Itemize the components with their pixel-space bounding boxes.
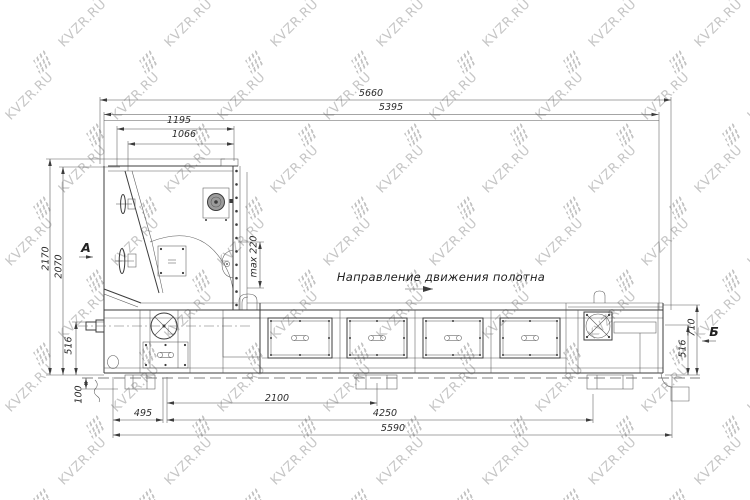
dim-label-4250: 4250 xyxy=(363,408,407,419)
top-sensor xyxy=(594,291,605,303)
dim-label-100: 100 xyxy=(74,373,85,417)
dim-label-2170: 2170 xyxy=(41,237,52,281)
web-direction-note: Направление движения полотна xyxy=(331,270,551,284)
inspection-hatch-2 xyxy=(347,318,407,358)
view-marker-b: Б xyxy=(702,324,726,339)
handwheel-lower xyxy=(115,249,136,274)
column-bolt xyxy=(235,237,238,240)
column-bolt xyxy=(235,197,238,200)
motor-fan xyxy=(203,188,229,221)
end-foot xyxy=(661,373,689,401)
support-block xyxy=(587,375,633,389)
column-bolt xyxy=(235,170,238,173)
dim-label-max-220: max 220 xyxy=(249,232,260,282)
engineering-drawing-page: KVZR.RUKVZR.RUKVZR.RUKVZR.RUKVZR.RUKVZR.… xyxy=(0,0,750,500)
dim-label-495: 495 xyxy=(121,408,165,419)
inspection-hatch-4 xyxy=(500,318,560,358)
dim-label-1066: 1066 xyxy=(162,129,206,140)
dim-label-1195: 1195 xyxy=(157,115,201,126)
column-bolt xyxy=(235,183,238,186)
forming-head xyxy=(104,159,257,373)
support-block xyxy=(356,375,397,389)
conveyor xyxy=(78,291,689,402)
column-bolt xyxy=(235,250,238,253)
inspection-hatch-3 xyxy=(423,318,483,358)
column-bolt xyxy=(235,290,238,293)
dim-label-516-left: 516 xyxy=(64,324,75,368)
head-top-lip xyxy=(221,159,238,166)
cable xyxy=(94,380,99,402)
head-access-panel xyxy=(158,246,186,276)
deflector-curve xyxy=(150,236,233,290)
dim-label-2070: 2070 xyxy=(54,245,65,289)
dim-label-2100: 2100 xyxy=(255,393,299,404)
column-bolt xyxy=(235,277,238,280)
column-bolt xyxy=(235,223,238,226)
hopper-wall-outer xyxy=(125,171,159,293)
column-bolt xyxy=(235,210,238,213)
roller-pedestal xyxy=(239,294,257,310)
head-column xyxy=(222,166,247,310)
left-foot-roller xyxy=(108,356,119,369)
support-block xyxy=(125,375,155,389)
inspection-hatch-1 xyxy=(268,318,332,358)
dim-label-5590: 5590 xyxy=(371,423,415,434)
dim-label-710: 710 xyxy=(687,306,698,350)
extension-lines xyxy=(46,97,700,438)
dim-label-5395: 5395 xyxy=(369,102,413,113)
view-marker-a: А xyxy=(74,240,98,255)
column-bolt xyxy=(235,264,238,267)
dim-label-5660: 5660 xyxy=(349,88,393,99)
column-bolt xyxy=(235,304,238,307)
